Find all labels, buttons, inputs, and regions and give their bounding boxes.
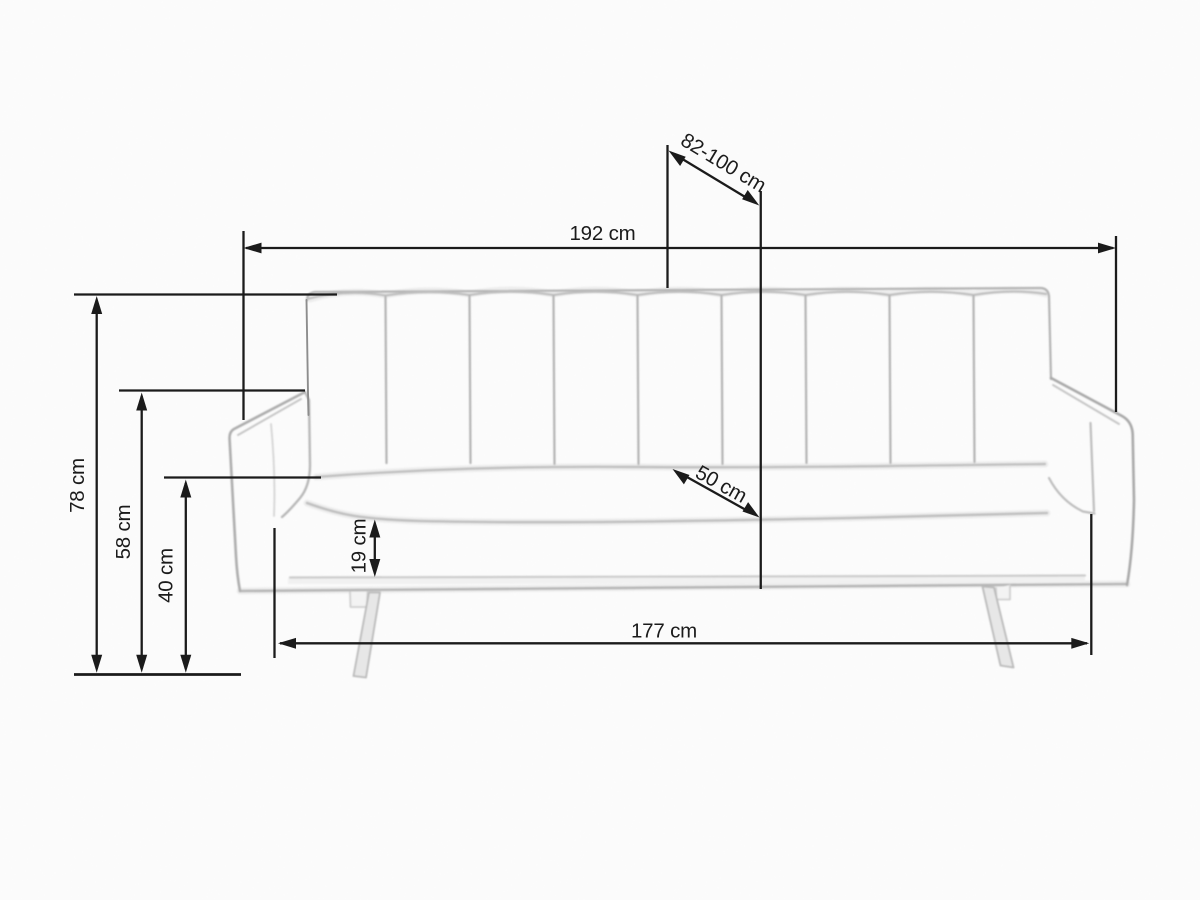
svg-text:177 cm: 177 cm xyxy=(631,620,697,643)
svg-text:78 cm: 78 cm xyxy=(66,458,89,513)
svg-text:58 cm: 58 cm xyxy=(112,505,135,560)
svg-text:40 cm: 40 cm xyxy=(155,548,178,603)
svg-text:192 cm: 192 cm xyxy=(569,222,635,245)
svg-text:19 cm: 19 cm xyxy=(348,519,371,574)
